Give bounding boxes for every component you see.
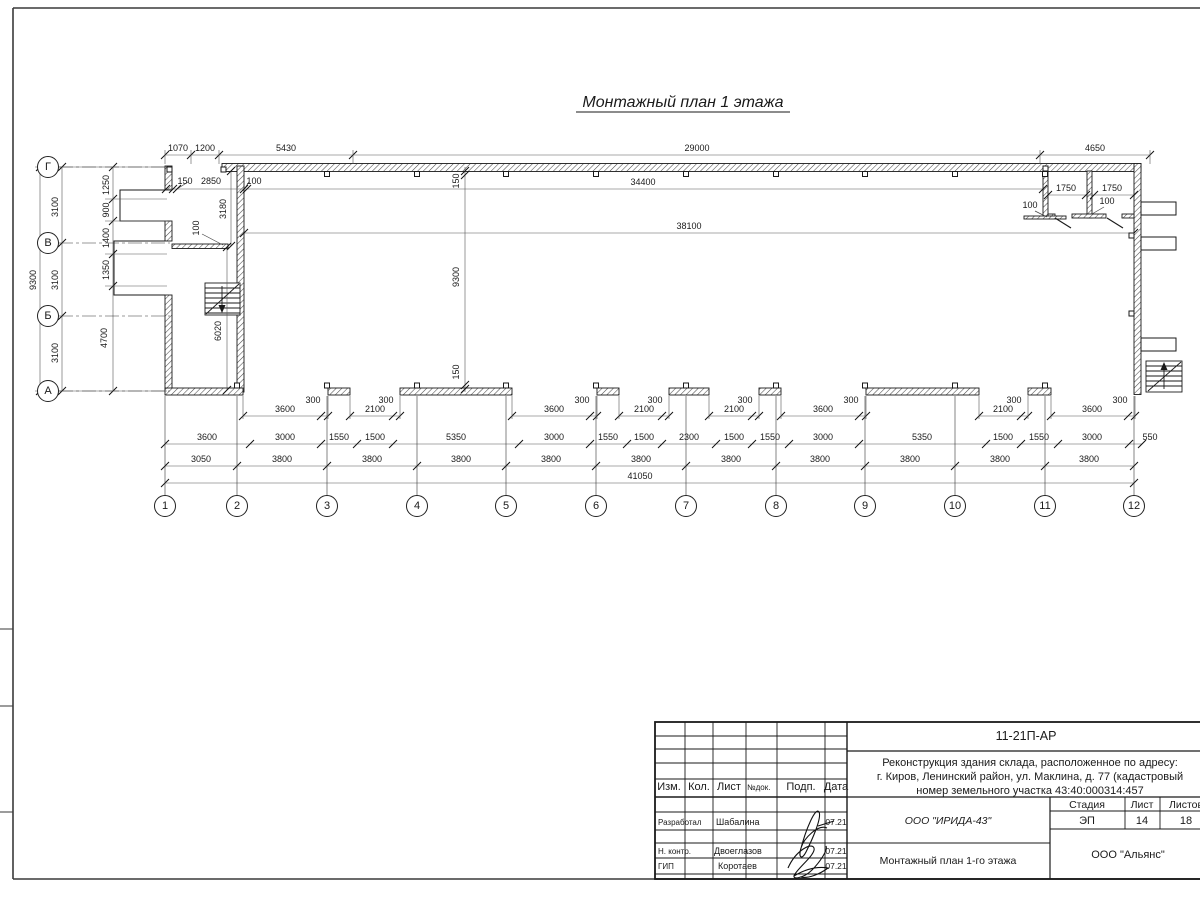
- signature-2: [788, 846, 828, 878]
- tb-stage-value: ЭП: [1079, 815, 1095, 827]
- dim-label: 5350: [912, 432, 932, 442]
- screen-wall: [1024, 216, 1066, 219]
- tb-name-3: Коротаев: [718, 861, 757, 871]
- dim-label: 5350: [446, 432, 466, 442]
- svg-text:12: 12: [1128, 500, 1140, 512]
- svg-text:Б: Б: [44, 310, 51, 322]
- dim-label: 1200: [195, 143, 215, 153]
- south-pier-1: [328, 388, 350, 395]
- drawing-sheet: Монтажный план 1 этажа: [0, 0, 1200, 900]
- dim-label: 2100: [724, 404, 744, 414]
- tb-name-2: Двоеглазов: [714, 846, 762, 856]
- door-leaves: [1055, 218, 1123, 228]
- leader-lines: [177, 182, 1104, 245]
- tb-stage-label: Стадия: [1069, 799, 1105, 811]
- stair-interior: [205, 283, 240, 315]
- dim-label: 3600: [1082, 404, 1102, 414]
- dim-label: 3100: [50, 197, 60, 217]
- dim-label: 900: [101, 202, 111, 217]
- dim-label: 2850: [201, 176, 221, 186]
- tb-sheets-label: Листов: [1169, 799, 1200, 811]
- dim-label: 5430: [276, 143, 296, 153]
- south-pier-5: [759, 388, 781, 395]
- tr-room-sill3: [1122, 214, 1134, 218]
- dim-label: 3600: [197, 432, 217, 442]
- title-block: Изм. Кол. Лист №док. Подп. Дата Разработ…: [655, 722, 1200, 879]
- south-pier-4: [669, 388, 709, 395]
- tr-room2-door: [1107, 218, 1123, 228]
- dim-label: 2100: [634, 404, 654, 414]
- tb-role-2: Н. контр.: [658, 847, 691, 856]
- dim-label: 100: [246, 176, 261, 186]
- svg-text:2: 2: [234, 500, 240, 512]
- dim-label: 3000: [1082, 432, 1102, 442]
- dim-label: 1500: [365, 432, 385, 442]
- dim-label: 3000: [813, 432, 833, 442]
- dim-label: 300: [305, 395, 320, 405]
- dim-label: 3800: [631, 454, 651, 464]
- dim-label: 1250: [101, 175, 111, 195]
- tb-col-izm: Изм.: [657, 781, 681, 793]
- east-ramp-3: [1141, 338, 1176, 351]
- dim-label: 3050: [191, 454, 211, 464]
- svg-text:А: А: [44, 385, 52, 397]
- tb-col-data: Дата: [824, 781, 849, 793]
- tb-desc-2: г. Киров, Ленинский район, ул. Маклина, …: [877, 771, 1183, 783]
- dim-label: 4650: [1085, 143, 1105, 153]
- dim-label: 1550: [760, 432, 780, 442]
- dim-label: 3800: [810, 454, 830, 464]
- floor-plan-drawing: Монтажный план 1 этажа: [0, 0, 1200, 900]
- tb-doc-code: 11-21П-АР: [996, 729, 1057, 743]
- dim-label: 3800: [451, 454, 471, 464]
- room1-partition: [172, 244, 228, 249]
- tr-room-partition: [1087, 171, 1092, 218]
- sheet-frame: [0, 8, 1200, 879]
- dim-label: 300: [843, 395, 858, 405]
- dim-label: 1750: [1102, 183, 1122, 193]
- dim-label: 300: [647, 395, 662, 405]
- dim-label: 38100: [676, 221, 701, 231]
- tr-room-west-wall: [1043, 171, 1048, 218]
- dim-label: 3800: [1079, 454, 1099, 464]
- svg-text:6: 6: [593, 500, 599, 512]
- dim-label: 3800: [990, 454, 1010, 464]
- stair-exterior: [1146, 361, 1182, 392]
- south-pier-3: [597, 388, 619, 395]
- dim-label: 29000: [684, 143, 709, 153]
- dim-label: 3000: [544, 432, 564, 442]
- dim-label: 3100: [50, 343, 60, 363]
- tb-sheet-label: Лист: [1131, 799, 1154, 811]
- dim-label: 1550: [329, 432, 349, 442]
- tb-role-1: Разработал: [658, 818, 702, 827]
- dim-label: 3800: [721, 454, 741, 464]
- dim-label: 300: [1006, 395, 1021, 405]
- tb-col-ndok: №док.: [747, 783, 770, 792]
- dim-label: 2100: [365, 404, 385, 414]
- dim-label: 3180: [218, 199, 228, 219]
- dim-label: 3000: [275, 432, 295, 442]
- tb-drawing-name: Монтажный план 1-го этажа: [880, 855, 1017, 867]
- tb-org: ООО "ИРИДА-43": [905, 815, 993, 827]
- dim-label: 100: [1022, 200, 1037, 210]
- tb-sheet-value: 14: [1136, 815, 1148, 827]
- dim-label: 9300: [451, 267, 461, 287]
- tb-col-kol: Кол.: [688, 781, 710, 793]
- dim-label: 300: [1112, 395, 1127, 405]
- south-pier-2: [400, 388, 512, 395]
- dim-label: 1500: [993, 432, 1013, 442]
- east-wall: [1134, 164, 1141, 395]
- dim-label: 6020: [213, 321, 223, 341]
- tb-date-2: 07.21: [825, 846, 847, 856]
- bays-and-ramps: [114, 190, 1176, 351]
- dim-label: 3600: [275, 404, 295, 414]
- svg-text:8: 8: [773, 500, 779, 512]
- dim-label: 1500: [724, 432, 744, 442]
- dim-label: 2100: [993, 404, 1013, 414]
- dim-label: 150: [451, 364, 461, 379]
- tr-room-sill2: [1072, 214, 1106, 218]
- dim-label: 3100: [50, 270, 60, 290]
- east-ramp-1: [1141, 202, 1176, 215]
- tr-room1-door: [1055, 218, 1071, 228]
- dim-label: 3800: [541, 454, 561, 464]
- dim-label: 4700: [99, 328, 109, 348]
- dim-label: 3800: [272, 454, 292, 464]
- west-wall-seg2: [165, 221, 172, 241]
- tb-name-1: Шабалина: [716, 817, 759, 827]
- tb-sheets-value: 18: [1180, 815, 1192, 827]
- dim-label: 100: [1099, 196, 1114, 206]
- dim-label: 1550: [598, 432, 618, 442]
- dim-label: 550: [1142, 432, 1157, 442]
- dim-label: 3800: [900, 454, 920, 464]
- dim-label: 150: [177, 176, 192, 186]
- west-bay-1: [120, 190, 165, 221]
- dim-label: 2300: [679, 432, 699, 442]
- dim-label: 1070: [168, 143, 188, 153]
- svg-text:Г: Г: [45, 161, 51, 173]
- svg-text:10: 10: [949, 500, 961, 512]
- svg-text:5: 5: [503, 500, 509, 512]
- tb-desc-3: номер земельного участка 43:40:000314:45…: [916, 785, 1144, 797]
- svg-text:11: 11: [1039, 500, 1050, 512]
- svg-text:В: В: [44, 237, 51, 249]
- tb-date-1: 07.21: [825, 817, 847, 827]
- dim-label: 1750: [1056, 183, 1076, 193]
- tb-desc-1: Реконструкция здания склада, расположенн…: [882, 757, 1178, 769]
- south-pier-0: [165, 388, 243, 395]
- dim-label: 1550: [1029, 432, 1049, 442]
- tb-col-list: Лист: [717, 781, 741, 793]
- dim-label: 9300: [28, 270, 38, 290]
- tb-company: ООО "Альянс": [1091, 849, 1165, 861]
- svg-text:7: 7: [683, 500, 689, 512]
- dim-label: 300: [574, 395, 589, 405]
- dim-label: 3600: [813, 404, 833, 414]
- dim-label: 34400: [630, 177, 655, 187]
- dim-label: 1400: [101, 228, 111, 248]
- dim-label: 150: [451, 173, 461, 188]
- dim-label: 41050: [627, 471, 652, 481]
- dim-label: 3800: [362, 454, 382, 464]
- dim-label: 300: [737, 395, 752, 405]
- west-wall-seg3: [165, 295, 172, 392]
- north-wall: [222, 164, 1141, 172]
- west-bay-2: [114, 241, 165, 295]
- dimension-labels: 1070120054302900046501502850100344003810…: [28, 143, 1158, 481]
- south-pier-6: [866, 388, 979, 395]
- svg-text:9: 9: [862, 500, 868, 512]
- svg-text:4: 4: [414, 500, 420, 512]
- axis2-wall: [237, 166, 244, 392]
- south-pier-7: [1028, 388, 1051, 395]
- tb-col-podp: Подп.: [786, 781, 815, 793]
- dim-label: 3600: [544, 404, 564, 414]
- tb-date-3: 07.21: [825, 861, 847, 871]
- walls: [165, 164, 1141, 396]
- svg-text:1: 1: [162, 500, 168, 512]
- dim-label: 100: [191, 220, 201, 235]
- svg-text:3: 3: [324, 500, 330, 512]
- dim-label: 300: [378, 395, 393, 405]
- column-markers: [167, 166, 1134, 388]
- east-ramp-2: [1141, 237, 1176, 250]
- tb-role-3: ГИП: [658, 862, 674, 871]
- page-title: Монтажный план 1 этажа: [582, 94, 783, 111]
- dim-label: 1350: [101, 260, 111, 280]
- dim-label: 1500: [634, 432, 654, 442]
